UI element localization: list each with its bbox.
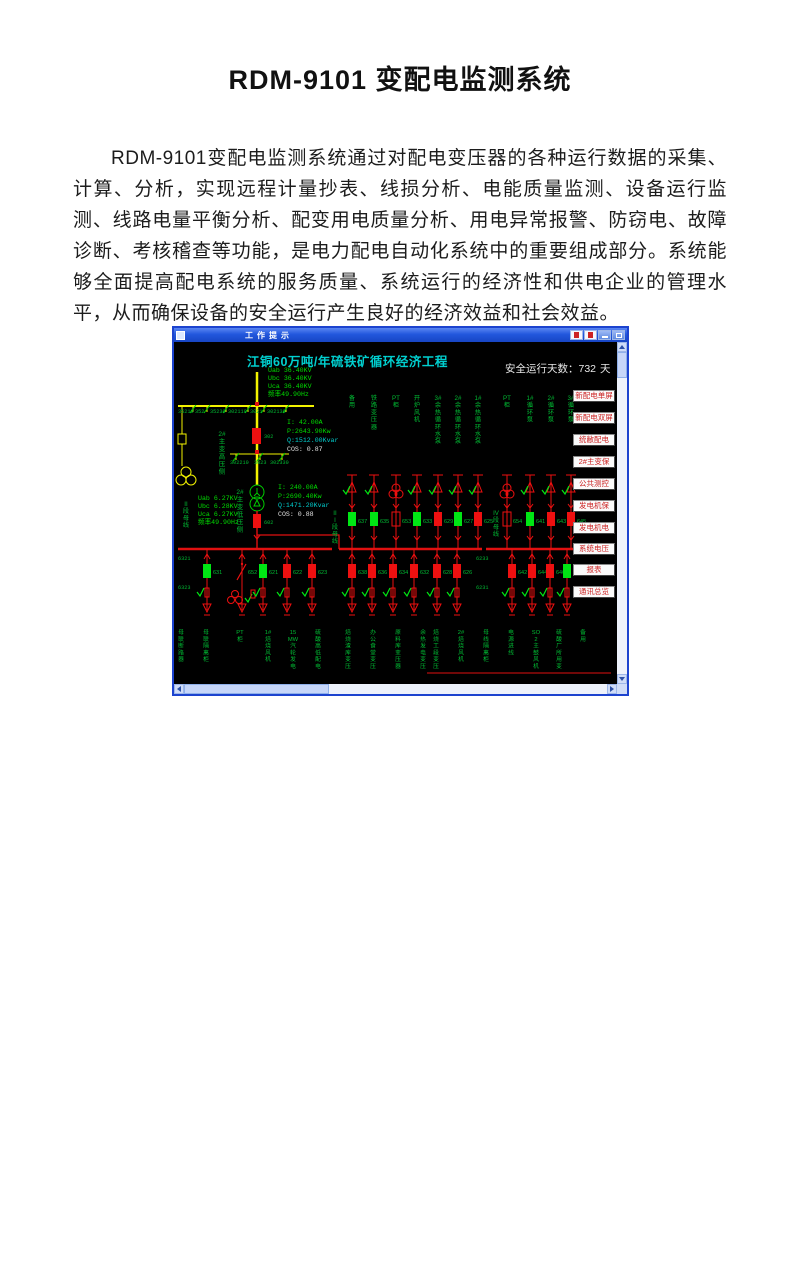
breaker-label-654: 654 <box>513 519 522 525</box>
bottom-feeder-name: 原料库变压器 <box>395 629 401 670</box>
hv-switch-label: 302210 <box>230 460 249 466</box>
lv-voltage: Uab 6.27KV <box>198 495 238 502</box>
breaker-621[interactable] <box>259 564 267 578</box>
bottom-feeder-name: 焙烧渣库变压 <box>345 628 351 670</box>
feeder-bottom-622: 622 <box>277 549 302 615</box>
bottom-feeder-name: 母联断路器 <box>178 629 184 663</box>
breaker-label-653: 653 <box>402 519 411 525</box>
bus3-label: III段母线 <box>332 510 338 545</box>
window-minimize-icon[interactable] <box>598 330 611 340</box>
breaker-label-634: 634 <box>399 570 408 576</box>
breaker-644[interactable] <box>528 564 536 578</box>
feeder-top-641: 641 <box>521 475 545 549</box>
scroll-left-icon[interactable] <box>174 684 184 694</box>
window-titlebar[interactable]: 工作提示 <box>174 328 627 342</box>
breaker-label-625: 625 <box>484 519 493 525</box>
bottom-feeder-name: 电源进线 <box>508 628 514 656</box>
breaker-label-627: 627 <box>464 519 473 525</box>
feeder-bottom-634: 634 <box>383 549 408 615</box>
feeder-bottom-623: 623 <box>302 549 327 615</box>
bus-tag: 6321 <box>178 556 190 562</box>
feeder-bottom-652: 652 <box>228 549 258 615</box>
horizontal-scrollbar[interactable] <box>174 684 617 694</box>
breaker-label-635: 635 <box>380 519 389 525</box>
breaker-label-643: 643 <box>557 519 566 525</box>
bus-tag: 6323 <box>178 585 190 591</box>
breaker-label-621: 621 <box>269 570 278 576</box>
hv-side-label: 2#主变高压侧 <box>218 431 226 476</box>
hv-voltage: 频率49.90Hz <box>268 389 309 398</box>
feeder-bottom-646: 646 <box>540 549 565 615</box>
breaker-632[interactable] <box>410 564 418 578</box>
breaker-label-623: 623 <box>318 570 327 576</box>
top-feeder-name: 2#循环泵 <box>548 395 555 424</box>
feeder-bottom-621: 621 <box>253 549 278 615</box>
top-feeder-name: 1#余热循环水泵 <box>475 395 482 445</box>
breaker-label-641: 641 <box>536 519 545 525</box>
breaker-label-636: 636 <box>378 570 387 576</box>
bus2-label: II段母线 <box>183 501 189 529</box>
hv-switch-label: 352 <box>195 409 204 415</box>
breaker-label-631: 631 <box>213 570 222 576</box>
menu-button-1[interactable]: 新配电单屏 <box>573 390 615 402</box>
breaker-648[interactable] <box>563 564 571 578</box>
menu-button-4[interactable]: 2#主变保 <box>573 456 615 468</box>
breaker-638[interactable] <box>348 564 356 578</box>
breaker-label-642: 642 <box>518 570 527 576</box>
breaker-label-626: 626 <box>463 570 472 576</box>
menu-button-3[interactable]: 统敝配电 <box>573 434 615 446</box>
window-button-custom-2[interactable] <box>584 330 597 340</box>
feeder-top-635: 635 <box>365 475 389 549</box>
bottom-feeder-name: 母联隔离柜 <box>203 629 209 663</box>
menu-button-8[interactable]: 系统电压 <box>573 543 615 555</box>
breaker-636[interactable] <box>368 564 376 578</box>
menu-button-9[interactable]: 报表 <box>573 564 615 576</box>
feeder-bottom-648: 648 <box>557 549 582 615</box>
bottom-feeder-name: 母线隔离柜 <box>483 629 489 663</box>
scada-window: 工作提示 江铜60万吨/年硫铁矿循环经济工程 安全运行天数：732天 <box>172 326 629 696</box>
breaker-302[interactable] <box>252 428 261 444</box>
bottom-feeder-name: SO2主鼓风机 <box>532 630 541 670</box>
window-button-custom-1[interactable] <box>570 330 583 340</box>
horizontal-scroll-thumb[interactable] <box>184 684 329 694</box>
bottom-feeder-name: 余热发电变压 <box>420 628 426 670</box>
breaker-label-637: 637 <box>358 519 367 525</box>
breaker-629[interactable] <box>434 512 442 526</box>
scada-canvas: 江铜60万吨/年硫铁矿循环经济工程 安全运行天数：732天 <box>174 342 617 684</box>
safe-days: 安全运行天数：732天 <box>505 362 611 375</box>
lv-metering: I: 240.00A <box>278 484 318 491</box>
hv-switch-label: 302330 <box>270 460 289 466</box>
breaker-628[interactable] <box>433 564 441 578</box>
hv-metering: Q:1512.00Kvar <box>287 437 338 444</box>
bottom-feeder-name: 办公食堂变压 <box>370 628 376 670</box>
hv-voltage: Uab 36.40KV <box>268 367 312 374</box>
vertical-scrollbar[interactable] <box>617 342 627 684</box>
breaker-622[interactable] <box>283 564 291 578</box>
breaker-627[interactable] <box>454 512 462 526</box>
breaker-625[interactable] <box>474 512 482 526</box>
menu-button-7[interactable]: 发电机电 <box>573 522 615 534</box>
window-content: 江铜60万吨/年硫铁矿循环经济工程 安全运行天数：732天 <box>174 342 627 684</box>
bottom-feeder-name: PT柜 <box>236 630 244 643</box>
intro-paragraph: RDM-9101变配电监测系统通过对配电变压器的各种运行数据的采集、计算、分析，… <box>73 143 727 329</box>
hv-switch-label: 3021 <box>250 409 262 415</box>
scrollbar-corner <box>617 684 627 694</box>
menu-button-2[interactable]: 新配电双屏 <box>573 412 615 424</box>
top-feeder-name: 铁路变压器 <box>371 394 378 431</box>
bottom-feeder-name: 15MW汽轮发电 <box>288 630 299 670</box>
lv-voltage: Uca 6.27KV <box>198 511 238 518</box>
feeder-top-627: 627 <box>449 475 473 549</box>
feeder-top-637: 637 <box>343 475 367 549</box>
breaker-634[interactable] <box>389 564 397 578</box>
hv-metering: I: 42.00A <box>287 419 323 426</box>
hv-voltage: Ubc 36.40KV <box>268 375 312 382</box>
page-title: RDM-9101 变配电监测系统 <box>0 58 800 97</box>
top-feeder-name: 2#余热循环水泵 <box>455 395 462 445</box>
feeder-bottom-642: 642 <box>502 549 527 615</box>
breaker-641[interactable] <box>526 512 534 526</box>
hv-switch-label: 35210 <box>178 409 194 415</box>
feeder-top-643: 643 <box>542 475 566 549</box>
hv-metering: P:2643.90Kw <box>287 428 331 435</box>
feeder-top-629: 629 <box>429 475 453 549</box>
bottom-feeder-name: 硫酸厂所用变 <box>556 628 562 670</box>
breaker-635[interactable] <box>370 512 378 526</box>
hv-voltage: Uca 36.40KV <box>268 383 312 390</box>
breaker-631[interactable] <box>203 564 211 578</box>
breaker-label-644: 644 <box>538 570 547 576</box>
lv-voltage: 频率49.90Hz <box>198 517 239 526</box>
breaker-602[interactable] <box>253 514 261 528</box>
window-icon <box>176 331 185 340</box>
lv-side-label: 2#主变低压侧 <box>236 489 244 534</box>
menu-button-10[interactable]: 通讯总览 <box>573 586 615 598</box>
scroll-right-icon[interactable] <box>607 684 617 694</box>
lv-metering: Q:1471.20Kvar <box>278 502 329 509</box>
breaker-label-302: 302 <box>264 434 273 440</box>
hv-switch-label: 35230 <box>210 409 226 415</box>
feeder-top-654: 654 <box>500 475 522 549</box>
hv-switch-label: 302110 <box>228 409 247 415</box>
top-feeder-name: PT柜 <box>503 395 511 409</box>
breaker-label-629: 629 <box>444 519 453 525</box>
breaker-label-602: 602 <box>264 520 273 526</box>
scroll-up-icon[interactable] <box>617 342 627 352</box>
vertical-scroll-thumb[interactable] <box>617 352 627 378</box>
menu-button-6[interactable]: 发电机保 <box>573 500 615 512</box>
breaker-633[interactable] <box>413 512 421 526</box>
hv-switch-label: 302130 <box>267 409 286 415</box>
bottom-feeder-name: 硫酸高低配电 <box>315 628 321 670</box>
bus-tag: 6233 <box>476 556 488 562</box>
feeder-bottom-636: 636 <box>362 549 387 615</box>
breaker-label-622: 622 <box>293 570 302 576</box>
bus4-label: IV段母线 <box>493 510 500 538</box>
breaker-label-632: 632 <box>420 570 429 576</box>
bottom-feeder-name: 备用 <box>580 628 586 643</box>
bottom-feeder-name: 焙烧工段变压 <box>433 628 439 670</box>
bus-tag: 6231 <box>476 585 488 591</box>
feeder-bottom-628: 628 <box>427 549 452 615</box>
window-restore-icon[interactable] <box>612 330 625 340</box>
one-line-diagram: 江铜60万吨/年硫铁矿循环经济工程 安全运行天数：732天 <box>174 342 617 684</box>
window-title: 工作提示 <box>245 330 293 341</box>
breaker-label-652: 652 <box>248 570 257 576</box>
feeder-bottom-626: 626 <box>447 549 472 615</box>
feeder-top-653: 653 <box>389 475 411 549</box>
breaker-label-638: 638 <box>358 570 367 576</box>
document-page: RDM-9101 变配电监测系统 RDM-9101变配电监测系统通过对配电变压器… <box>0 0 800 1279</box>
breaker-646[interactable] <box>546 564 554 578</box>
breaker-637[interactable] <box>348 512 356 526</box>
breaker-label-633: 633 <box>423 519 432 525</box>
feeder-bottom-638: 638 <box>342 549 367 615</box>
feeder-top-625: 625 <box>469 475 493 549</box>
lv-metering: COS: 0.88 <box>278 511 314 518</box>
top-feeder-name: PT柜 <box>392 395 400 409</box>
scroll-down-icon[interactable] <box>617 674 627 684</box>
window-buttons <box>570 330 625 340</box>
breaker-642[interactable] <box>508 564 516 578</box>
feeder-bottom-644: 644 <box>522 549 547 615</box>
breaker-626[interactable] <box>453 564 461 578</box>
feeder-top-633: 633 <box>408 475 432 549</box>
menu-button-5[interactable]: 公共测控 <box>573 478 615 490</box>
breaker-623[interactable] <box>308 564 316 578</box>
top-feeder-name: 3#余热循环水泵 <box>435 395 442 445</box>
hv-switch-label: 3023 <box>254 460 266 466</box>
lv-metering: P:2690.40Kw <box>278 493 322 500</box>
hv-metering: COS: 0.87 <box>287 446 323 453</box>
bottom-feeder-name: 1#焙烧风机 <box>265 630 272 663</box>
feeder-bottom-632: 632 <box>404 549 429 615</box>
bottom-scroll-row <box>174 684 627 694</box>
feeder-bottom-631: 631 <box>197 549 222 615</box>
top-feeder-name: 开炉风机 <box>414 395 421 424</box>
bottom-feeder-name: 2#焙烧风机 <box>458 630 465 663</box>
lv-voltage: Ubc 6.28KV <box>198 503 238 510</box>
main-transformer <box>250 485 264 511</box>
breaker-label-628: 628 <box>443 570 452 576</box>
top-feeder-name: 备用 <box>349 394 356 409</box>
top-feeder-name: 1#循环泵 <box>527 395 534 424</box>
breaker-643[interactable] <box>547 512 555 526</box>
